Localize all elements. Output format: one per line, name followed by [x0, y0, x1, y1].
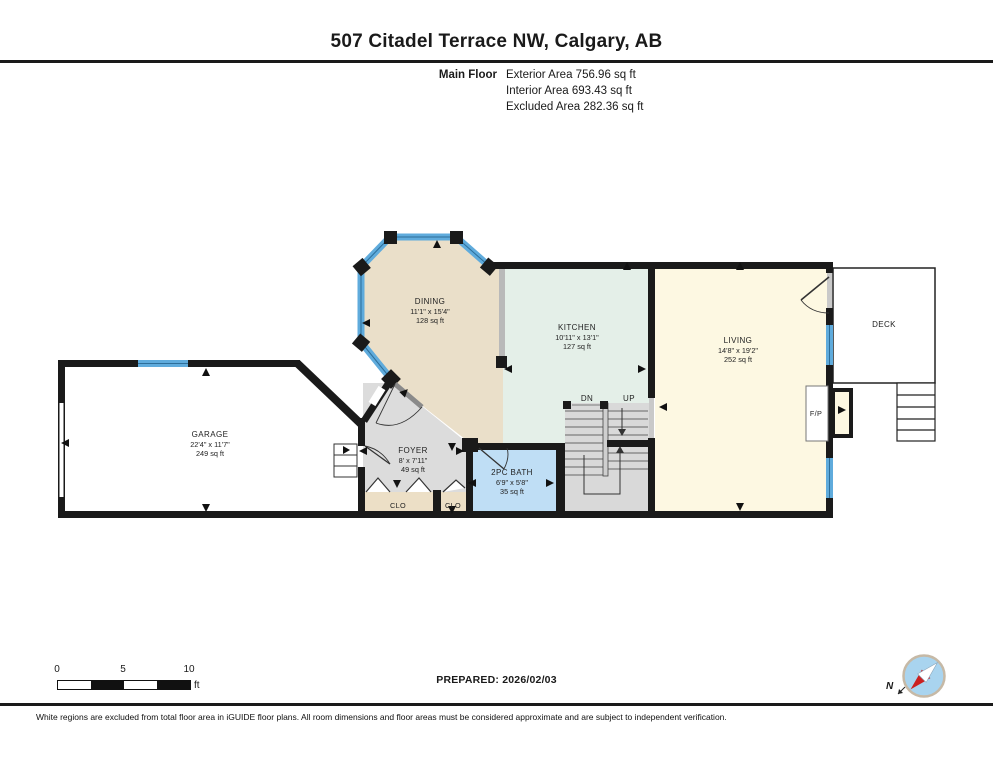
fireplace-label: F/P — [810, 409, 822, 418]
scale-tick-0: 0 — [47, 664, 67, 675]
scale-bar — [57, 680, 191, 690]
living-area: 252 sq ft — [724, 355, 752, 364]
dining-area: 128 sq ft — [416, 316, 444, 325]
garage-area: 249 sq ft — [196, 449, 224, 458]
stair-rail — [603, 403, 608, 476]
compass-north-label: N — [886, 681, 893, 692]
scale-tick-5: 5 — [113, 664, 133, 675]
disclaimer-text: White regions are excluded from total fl… — [36, 712, 727, 722]
stairs-up-label: UP — [623, 394, 635, 403]
deck-stairs — [897, 383, 935, 441]
garage-window — [138, 360, 188, 367]
living-window-lower — [826, 458, 833, 498]
north-arrow — [898, 687, 905, 694]
living-window-upper — [826, 325, 833, 365]
bath-dims: 6'9" x 5'8" — [496, 478, 528, 487]
bath-area: 35 sq ft — [500, 487, 524, 496]
deck-label: DECK — [872, 320, 896, 329]
closet-left-label: CLO — [390, 501, 406, 510]
closet-right-label: CLO — [445, 501, 461, 510]
scale-tick-10: 10 — [179, 664, 199, 675]
living-floor — [655, 269, 828, 512]
foyer-dims: 8' x 7'11" — [399, 456, 428, 465]
kitchen-area: 127 sq ft — [563, 342, 591, 351]
dining-label: DINING — [415, 297, 445, 306]
footer-divider — [0, 703, 993, 706]
dining-dims: 11'1" x 15'4" — [410, 307, 450, 316]
stairs-down-label: DN — [581, 394, 593, 403]
living-dims: 14'8" x 19'2" — [718, 346, 758, 355]
prepared-date: PREPARED: 2026/02/03 — [436, 674, 557, 686]
kitchen-label: KITCHEN — [558, 323, 596, 332]
bath-label: 2PC BATH — [491, 468, 533, 477]
garage-door — [60, 403, 64, 497]
compass-icon — [886, 650, 958, 708]
floorplan-drawing: DINING 11'1" x 15'4" 128 sq ft KITCHEN 1… — [0, 0, 993, 768]
living-label: LIVING — [724, 336, 753, 345]
foyer-label: FOYER — [398, 446, 428, 455]
garage-dims: 22'4" x 11'7" — [190, 440, 230, 449]
floorplan-page: { "header": { "title": "507 Citadel Terr… — [0, 0, 993, 768]
scale-unit: ft — [194, 680, 200, 691]
garage-label: GARAGE — [192, 430, 229, 439]
kitchen-dims: 10'11" x 13'1" — [555, 333, 599, 342]
foyer-area: 49 sq ft — [401, 465, 425, 474]
